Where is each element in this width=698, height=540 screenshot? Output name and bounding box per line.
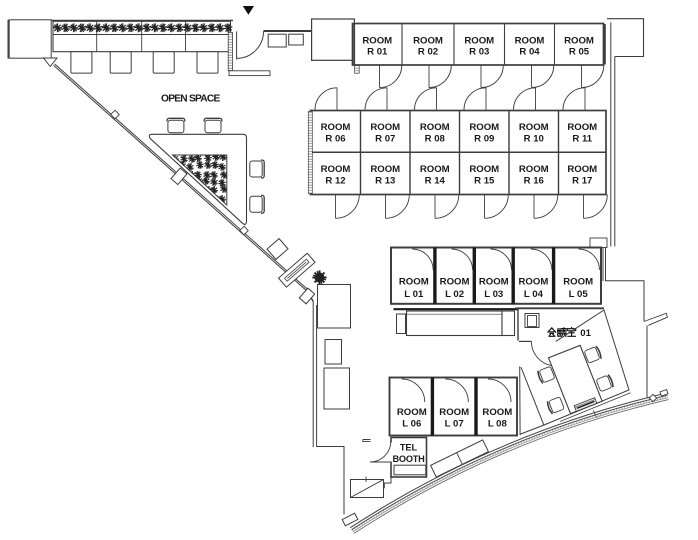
svg-text:R 11: R 11	[572, 134, 592, 145]
svg-text:ROOM: ROOM	[440, 277, 470, 288]
svg-text:ROOM: ROOM	[469, 164, 499, 175]
svg-text:ROOM: ROOM	[321, 122, 351, 133]
svg-text:L 01: L 01	[404, 289, 424, 300]
svg-text:L 08: L 08	[488, 418, 508, 429]
svg-text:L 04: L 04	[524, 289, 544, 300]
svg-text:BOOTH: BOOTH	[393, 454, 426, 464]
svg-text:R 08: R 08	[425, 134, 446, 145]
svg-text:R 06: R 06	[325, 134, 345, 145]
svg-text:ROOM: ROOM	[321, 164, 351, 175]
svg-text:R 03: R 03	[469, 47, 489, 58]
svg-text:ROOM: ROOM	[519, 164, 549, 175]
svg-text:ROOM: ROOM	[362, 35, 392, 46]
svg-text:ROOM: ROOM	[519, 122, 549, 133]
svg-text:ROOM: ROOM	[567, 122, 597, 133]
svg-text:L 02: L 02	[445, 289, 464, 300]
svg-text:ROOM: ROOM	[399, 277, 429, 288]
svg-text:L 05: L 05	[569, 289, 589, 300]
svg-text:ROOM: ROOM	[564, 35, 594, 46]
svg-text:ROOM: ROOM	[563, 277, 593, 288]
svg-text:R 05: R 05	[569, 47, 590, 58]
svg-text:R 09: R 09	[474, 134, 494, 145]
svg-text:ROOM: ROOM	[482, 407, 512, 418]
svg-text:R 15: R 15	[474, 175, 495, 186]
svg-text:ROOM: ROOM	[413, 35, 443, 46]
svg-text:L 03: L 03	[484, 289, 503, 300]
svg-text:R 17: R 17	[572, 175, 592, 186]
svg-text:OPEN SPACE: OPEN SPACE	[161, 93, 220, 104]
svg-text:ROOM: ROOM	[420, 122, 450, 133]
svg-text:L 06: L 06	[402, 418, 421, 429]
svg-text:L 07: L 07	[445, 418, 464, 429]
svg-text:ROOM: ROOM	[420, 164, 450, 175]
svg-text:R 07: R 07	[375, 134, 395, 145]
svg-text:01: 01	[580, 328, 591, 339]
svg-text:ROOM: ROOM	[370, 164, 400, 175]
svg-text:ROOM: ROOM	[464, 35, 494, 46]
svg-text:ROOM: ROOM	[567, 164, 597, 175]
svg-text:R 04: R 04	[519, 47, 540, 58]
svg-text:ROOM: ROOM	[515, 35, 545, 46]
svg-text:R 12: R 12	[325, 175, 345, 186]
svg-text:R 14: R 14	[425, 175, 446, 186]
svg-text:R 01: R 01	[367, 47, 388, 58]
svg-text:ROOM: ROOM	[518, 277, 548, 288]
svg-text:TEL: TEL	[400, 443, 418, 453]
svg-text:R 02: R 02	[418, 47, 438, 58]
svg-text:ROOM: ROOM	[397, 407, 427, 418]
svg-text:R 16: R 16	[524, 175, 544, 186]
svg-text:R 13: R 13	[375, 175, 395, 186]
svg-text:ROOM: ROOM	[479, 277, 509, 288]
svg-text:ROOM: ROOM	[469, 122, 499, 133]
svg-text:ROOM: ROOM	[370, 122, 400, 133]
svg-text:R 10: R 10	[524, 134, 544, 145]
svg-text:ROOM: ROOM	[439, 407, 469, 418]
